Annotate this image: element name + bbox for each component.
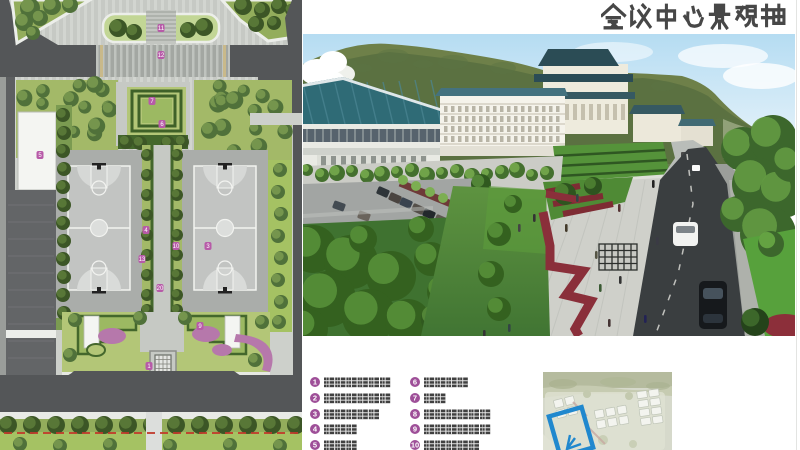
svg-text:3: 3 [313,410,317,419]
svg-text:7: 7 [413,394,417,403]
svg-text:5: 5 [313,441,317,450]
svg-text:1: 1 [313,378,317,387]
svg-text:8: 8 [413,410,417,419]
svg-text:10: 10 [411,441,419,450]
svg-text:2: 2 [313,394,317,403]
svg-text:6: 6 [413,378,417,387]
svg-text:9: 9 [413,425,417,434]
